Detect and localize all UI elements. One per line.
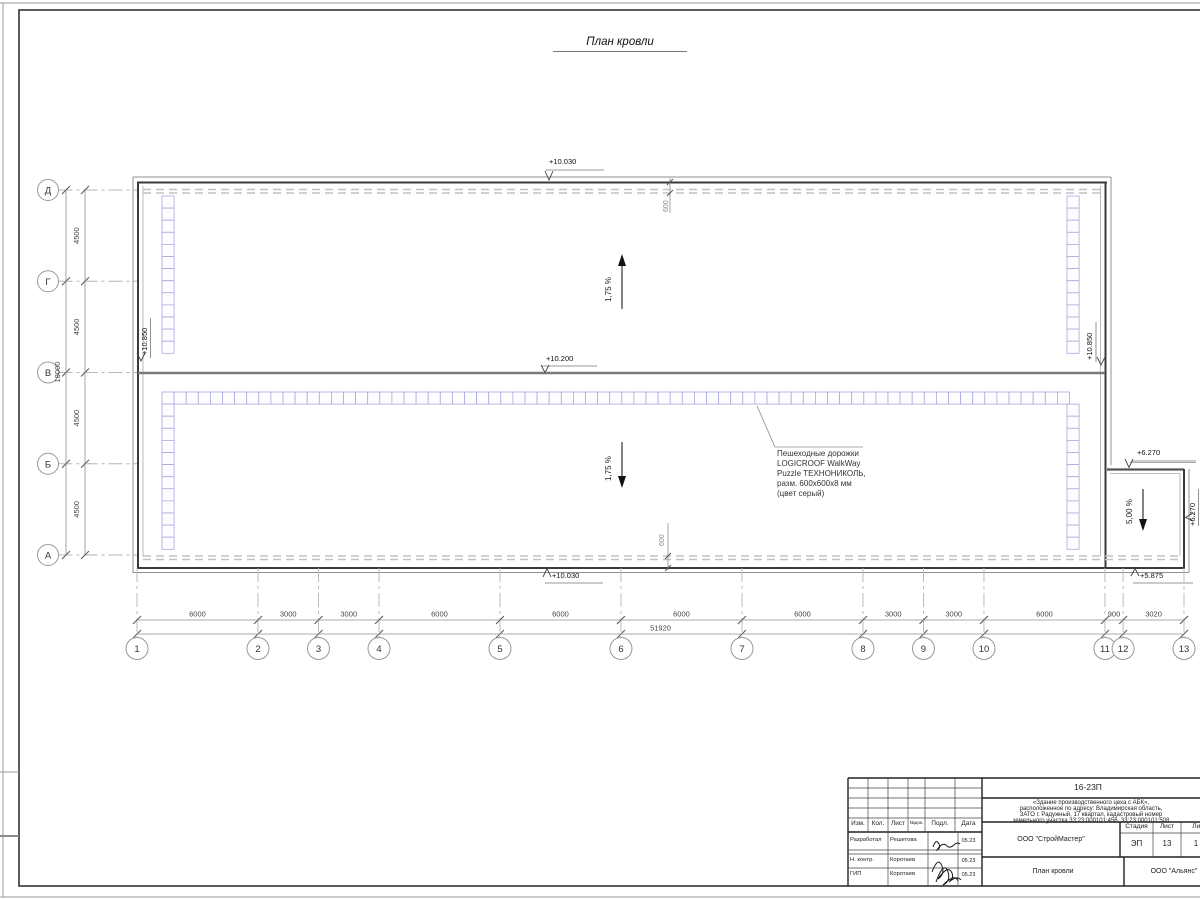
walkway-strip-lower-horizontal — [513, 392, 525, 404]
walkway-strip-lower-horizontal — [368, 392, 380, 404]
stamp-name: Коротаев — [890, 858, 915, 864]
walkway-strip-lower-horizontal — [840, 392, 852, 404]
walkway-strip-upper-right — [1067, 281, 1079, 293]
sheet-frame — [0, 3, 1200, 897]
walkway-strip-lower-horizontal — [501, 392, 513, 404]
walkway-strip-lower-right — [1067, 465, 1079, 477]
generated-axes-dims: 1234567891011121360003000300060006000600… — [38, 180, 1196, 660]
elevation-markers — [137, 170, 1199, 583]
walkway-strip-lower-left — [162, 501, 174, 513]
walkway-strip-lower-horizontal — [622, 392, 634, 404]
walkway-strip-lower-right — [1067, 489, 1079, 501]
drawing-title: План кровли — [982, 868, 1124, 875]
walkway-strip-lower-horizontal — [174, 392, 186, 404]
sheets-label: Листов — [1181, 824, 1200, 831]
stage-value: ЭП — [1120, 840, 1153, 848]
walkway-strip-lower-horizontal — [815, 392, 827, 404]
walkway-strip-lower-left — [162, 465, 174, 477]
walkway-strip-upper-left — [162, 208, 174, 220]
col-axis-label: 1 — [134, 644, 139, 655]
walkway-strip-lower-horizontal — [452, 392, 464, 404]
walkway-strip-lower-horizontal — [477, 392, 489, 404]
walkway-strip-upper-left — [162, 281, 174, 293]
walkway-strip-upper-right — [1067, 232, 1079, 244]
annex-outline — [1107, 463, 1196, 569]
offset-600-bottom: 600 — [659, 534, 666, 546]
walkway-strip-upper-left — [162, 232, 174, 244]
walkway-strip-lower-horizontal — [936, 392, 948, 404]
col-axis-label: 4 — [376, 644, 381, 655]
walkway-strip-lower-horizontal — [356, 392, 368, 404]
stamp-date: 05.23 — [955, 839, 982, 845]
walkway-strip-lower-horizontal — [961, 392, 973, 404]
col-dim-label: 6000 — [552, 610, 569, 619]
walkway-strip-lower-horizontal — [259, 392, 271, 404]
walkway-strip-lower-horizontal — [428, 392, 440, 404]
walkway-strip-lower-horizontal — [670, 392, 682, 404]
offset-600-dims — [665, 178, 673, 571]
walkway-strip-lower-horizontal — [525, 392, 537, 404]
walkway-strip-lower-horizontal — [247, 392, 259, 404]
walkway-strip-lower-horizontal — [694, 392, 706, 404]
walkway-strip-lower-horizontal — [295, 392, 307, 404]
walkway-strip-lower-horizontal — [682, 392, 694, 404]
walkway-strip-lower-horizontal — [610, 392, 622, 404]
slope-label-annex: 5,00 % — [1126, 499, 1134, 524]
col-axis-label: 2 — [255, 644, 260, 655]
col-total-label: 51920 — [650, 624, 671, 633]
walkway-strip-lower-horizontal — [731, 392, 743, 404]
walkway-note-leader — [757, 406, 863, 447]
walkway-strip-upper-right — [1067, 196, 1079, 208]
walkway-strip-lower-horizontal — [392, 392, 404, 404]
col-axis-label: 3 — [316, 644, 321, 655]
stamp-col-data: Дата — [955, 821, 982, 827]
stage-label: Стадия — [1120, 824, 1153, 831]
walkway-note-line: Puzzle ТЕХНОНИКОЛЬ, — [777, 469, 866, 479]
row-dim-label: 4500 — [72, 319, 81, 336]
walkway-strip-lower-horizontal — [186, 392, 198, 404]
walkway-strip-lower-horizontal — [634, 392, 646, 404]
walkway-strip-upper-right — [1067, 257, 1079, 269]
slope-label-lower: 1,75 % — [605, 456, 613, 481]
col-dim-label: 6000 — [189, 610, 206, 619]
walkway-strip-lower-horizontal — [537, 392, 549, 404]
walkway-strip-lower-left — [162, 440, 174, 452]
col-dim-label: 6000 — [794, 610, 811, 619]
walkway-strip-lower-horizontal — [598, 392, 610, 404]
walkway-strip-lower-horizontal — [465, 392, 477, 404]
walkway-strip-lower-horizontal — [1021, 392, 1033, 404]
walkway-strip-lower-left — [162, 477, 174, 489]
stamp-role: Н. контр. — [850, 858, 874, 864]
col-axis-label: 13 — [1179, 644, 1190, 655]
walkway-strip-upper-left — [162, 196, 174, 208]
walkway-strip-lower-horizontal — [198, 392, 210, 404]
walkway-strip-lower-right — [1067, 416, 1079, 428]
walkway-strip-lower-horizontal — [162, 392, 174, 404]
elevation-ridge: +10.200 — [546, 355, 573, 363]
walkway-strip-lower-horizontal — [1009, 392, 1021, 404]
doc-code: 16-23П — [982, 783, 1194, 792]
walkway-strip-lower-left — [162, 416, 174, 428]
slope-arrow-annex — [1139, 489, 1147, 531]
elevation-left-wall: +10.850 — [141, 328, 149, 355]
sheets-total: 1 — [1181, 840, 1200, 848]
walkway-strip-upper-left — [162, 293, 174, 305]
row-axis-label: В — [45, 368, 51, 379]
walkway-strip-lower-horizontal — [719, 392, 731, 404]
sheet-title: План кровли — [553, 37, 687, 52]
stamp-col-ndok: №док. — [908, 822, 925, 827]
walkway-note-line: LOGICROOF WalkWay — [777, 459, 860, 469]
col-axis-label: 10 — [979, 644, 990, 655]
walkway-strip-lower-left — [162, 489, 174, 501]
walkway-note-line: разм. 600х600х8 мм — [777, 479, 852, 489]
walkway-strip-upper-left — [162, 329, 174, 341]
elevation-right-wall: +10.850 — [1086, 333, 1094, 360]
walkway-strip-lower-horizontal — [380, 392, 392, 404]
col-dim-label: 6000 — [431, 610, 448, 619]
walkway-strip-lower-horizontal — [235, 392, 247, 404]
walkway-strip-lower-horizontal — [331, 392, 343, 404]
walkway-strip-lower-right — [1067, 440, 1079, 452]
elevation-annex-right: +6.270 — [1189, 503, 1197, 526]
walkway-strip-upper-left — [162, 305, 174, 317]
col-dim-label: 3000 — [885, 610, 902, 619]
slope-arrow-upper — [618, 254, 626, 309]
walkway-strip-upper-right — [1067, 329, 1079, 341]
elevation-bottom: +10.030 — [552, 572, 579, 580]
row-total-label: 18000 — [53, 362, 62, 383]
offset-600-top: 600 — [663, 200, 670, 212]
elevation-top: +10.030 — [549, 158, 576, 166]
walkway-strip-lower-horizontal — [210, 392, 222, 404]
walkway-strip-lower-horizontal — [646, 392, 658, 404]
stamp-date: 05.23 — [955, 873, 982, 879]
row-axis-label: А — [45, 551, 52, 562]
col-dim-label: 3000 — [945, 610, 962, 619]
stamp-role: ГИП — [850, 872, 861, 878]
drawing-sheet: 1234567891011121360003000300060006000600… — [0, 0, 1200, 900]
walkway-strip-lower-right — [1067, 477, 1079, 489]
row-axis-label: Г — [45, 277, 50, 288]
walkway-strip-upper-left — [162, 257, 174, 269]
walkway-strip-lower-left — [162, 404, 174, 416]
walkway-strip-lower-horizontal — [344, 392, 356, 404]
walkway-strip-lower-horizontal — [440, 392, 452, 404]
col-axis-label: 6 — [618, 644, 623, 655]
walkway-strip-lower-horizontal — [1033, 392, 1045, 404]
walkway-strip-lower-horizontal — [561, 392, 573, 404]
walkway-strip-lower-horizontal — [755, 392, 767, 404]
sheet-label: Лист — [1153, 824, 1181, 831]
walkway-strip-lower-horizontal — [573, 392, 585, 404]
walkway-strip-lower-horizontal — [658, 392, 670, 404]
walkway-note-line: Пешеходные дорожки — [777, 449, 859, 459]
walkway-strip-lower-left — [162, 513, 174, 525]
walkway-strip-lower-horizontal — [852, 392, 864, 404]
col-dim-label: 6000 — [1036, 610, 1053, 619]
row-axis-label: Д — [45, 186, 52, 197]
walkway-strip-lower-horizontal — [271, 392, 283, 404]
col-axis-label: 5 — [497, 644, 502, 655]
walkway-strip-upper-right — [1067, 208, 1079, 220]
col-axis-label: 8 — [860, 644, 865, 655]
walkway-strip-lower-right — [1067, 404, 1079, 416]
walkway-strip-lower-horizontal — [864, 392, 876, 404]
walkway-strip-lower-horizontal — [743, 392, 755, 404]
walkway-strip-lower-horizontal — [549, 392, 561, 404]
walkway-strip-lower-horizontal — [767, 392, 779, 404]
walkway-strip-lower-horizontal — [985, 392, 997, 404]
walkway-strip-lower-left — [162, 525, 174, 537]
walkway-strip-upper-right — [1067, 305, 1079, 317]
walkway-strip-upper-left — [162, 317, 174, 329]
walkway-strip-lower-horizontal — [973, 392, 985, 404]
plan-linework: 1234567891011121360003000300060006000600… — [0, 0, 1200, 900]
walkway-strip-lower-horizontal — [707, 392, 719, 404]
walkway-strip-lower-horizontal — [791, 392, 803, 404]
walkway-strip-lower-horizontal — [888, 392, 900, 404]
walkway-strip-lower-right — [1067, 501, 1079, 513]
col-dim-label: 6000 — [673, 610, 690, 619]
walkway-strip-lower-horizontal — [876, 392, 888, 404]
walkway-strip-upper-right — [1067, 317, 1079, 329]
walkway-strip-lower-right — [1067, 525, 1079, 537]
sheet-number: 13 — [1153, 840, 1181, 848]
col-dim-label: 3020 — [1145, 610, 1162, 619]
walkway-strip-lower-horizontal — [900, 392, 912, 404]
col-axis-label: 7 — [739, 644, 744, 655]
col-axis-label: 11 — [1100, 644, 1110, 655]
walkway-strip-lower-horizontal — [489, 392, 501, 404]
walkway-strip-lower-horizontal — [223, 392, 235, 404]
col-axis-label: 12 — [1118, 644, 1129, 655]
walkway-strip-upper-right — [1067, 341, 1079, 353]
walkway-strip-lower-horizontal — [1045, 392, 1057, 404]
col-dim-label: 900 — [1108, 610, 1121, 619]
row-dim-label: 4500 — [72, 501, 81, 518]
stamp-name: Коротаев — [890, 872, 915, 878]
walkway-strip-upper-right — [1067, 220, 1079, 232]
org-client: ООО "Альянс" — [1124, 868, 1200, 875]
row-dim-label: 4500 — [72, 227, 81, 244]
walkway-strip-lower-horizontal — [404, 392, 416, 404]
walkway-strip-upper-right — [1067, 293, 1079, 305]
stamp-role: Разработал — [850, 838, 882, 844]
stamp-name: Решетова — [890, 838, 917, 844]
walkway-strip-lower-horizontal — [949, 392, 961, 404]
building-outline — [133, 177, 1189, 573]
col-dim-label: 3000 — [280, 610, 297, 619]
stamp-col-list: Лист — [888, 821, 908, 827]
stamp-col-izm: Изм. — [848, 821, 868, 827]
walkway-strip-upper-right — [1067, 244, 1079, 256]
elevation-annex-top: +6.270 — [1137, 449, 1160, 457]
walkway-strip-upper-left — [162, 220, 174, 232]
walkway-strip-lower-right — [1067, 513, 1079, 525]
slope-label-upper: 1,75 % — [605, 277, 613, 302]
walkway-strip-lower-horizontal — [803, 392, 815, 404]
walkway-strip-lower-horizontal — [307, 392, 319, 404]
walkway-strip-lower-left — [162, 537, 174, 549]
slope-arrow-lower — [618, 442, 626, 488]
row-dim-label: 4500 — [72, 410, 81, 427]
walkway-strip-lower-horizontal — [319, 392, 331, 404]
walkway-strip-lower-horizontal — [779, 392, 791, 404]
walkway-strip-lower-horizontal — [997, 392, 1009, 404]
org-designer: ООО "СтройМастер" — [982, 836, 1120, 843]
walkway-strip-lower-horizontal — [924, 392, 936, 404]
col-axis-label: 9 — [921, 644, 926, 655]
walkway-strip-upper-left — [162, 341, 174, 353]
walkway-strip-lower-right — [1067, 453, 1079, 465]
walkway-strip-lower-left — [162, 428, 174, 440]
walkway-strip-lower-horizontal — [828, 392, 840, 404]
walkway-strip-lower-horizontal — [416, 392, 428, 404]
walkway-note-line: (цвет серый) — [777, 489, 824, 499]
walkway-strip-lower-right — [1067, 537, 1079, 549]
walkway-strip-lower-horizontal — [1057, 392, 1069, 404]
col-dim-label: 3000 — [340, 610, 357, 619]
walkway-strip-lower-horizontal — [283, 392, 295, 404]
walkway-strip-upper-right — [1067, 269, 1079, 281]
stamp-col-kol: Кол. — [868, 821, 888, 827]
walkway-strip-upper-left — [162, 269, 174, 281]
walkway-strip-lower-right — [1067, 428, 1079, 440]
stamp-date: 05.23 — [955, 859, 982, 865]
elevation-annex-bottom: +5.875 — [1140, 572, 1163, 580]
walkway-strip-upper-left — [162, 244, 174, 256]
row-axis-label: Б — [45, 459, 51, 470]
walkway-strip-lower-horizontal — [912, 392, 924, 404]
walkway-strip-lower-left — [162, 453, 174, 465]
walkway-strip-lower-horizontal — [586, 392, 598, 404]
stamp-col-podl: Подл. — [925, 821, 955, 827]
